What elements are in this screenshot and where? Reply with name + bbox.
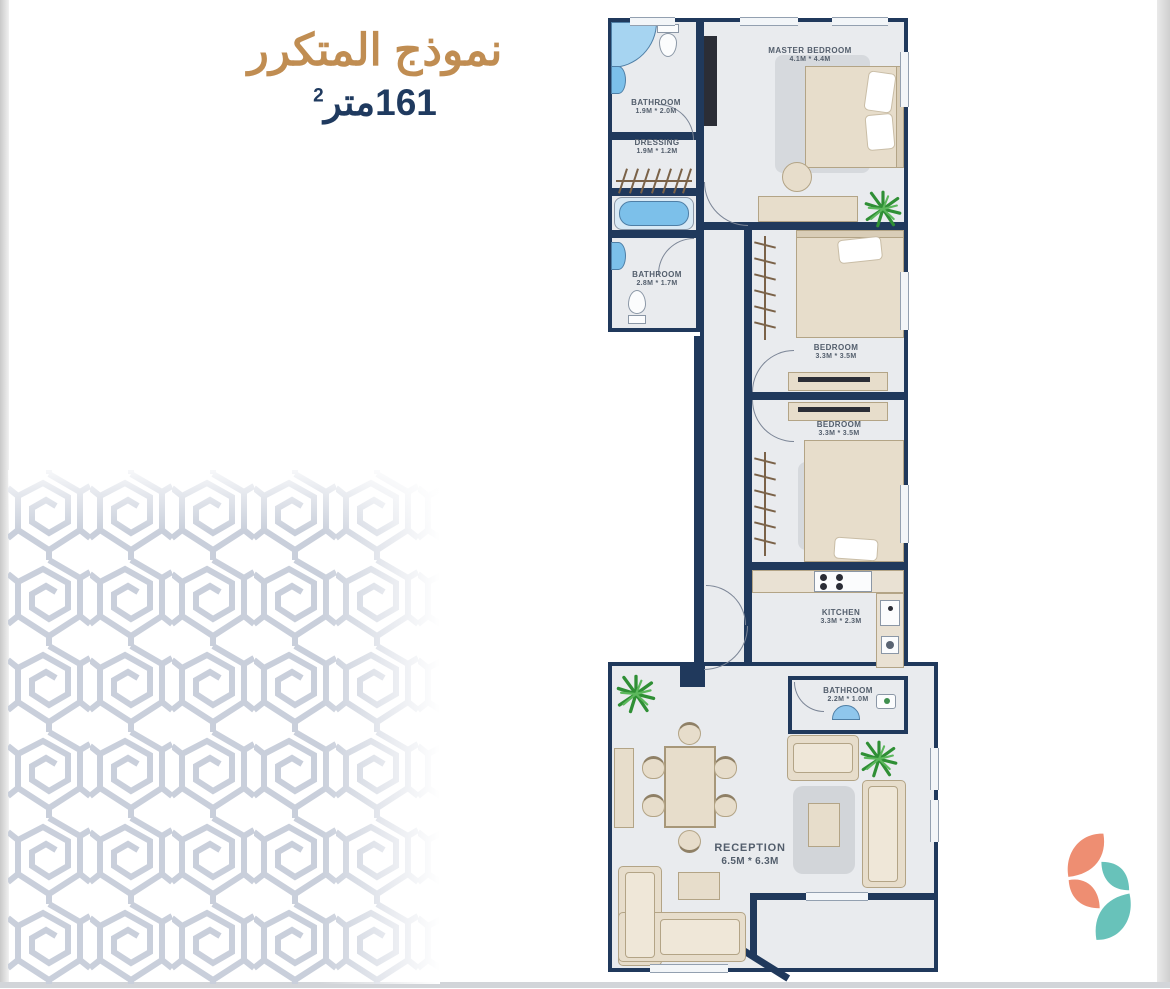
room-label-master-bedroom: MASTER BEDROOM4.1M * 4.4M <box>750 46 870 65</box>
floor-plan: MASTER BEDROOM4.1M * 4.4M BATHROOM1.9M *… <box>600 10 945 976</box>
pillow <box>863 70 896 114</box>
room-label-bathroom-mid: BATHROOM2.8M * 1.7M <box>612 270 702 289</box>
tv-icon <box>798 377 870 382</box>
chair <box>642 794 665 817</box>
sofa-cushions <box>793 743 853 773</box>
plant-icon <box>858 738 900 785</box>
room-label-bedroom-1: BEDROOM3.3M * 3.5M <box>780 343 892 362</box>
chair <box>678 722 701 745</box>
dining-table <box>664 746 716 828</box>
closet-rail-icon <box>754 236 776 340</box>
wall-corridor-left <box>694 336 704 666</box>
page: { "header": { "title_ar": "نموذج المتكرر… <box>0 0 1170 988</box>
toilet-tank <box>628 315 646 324</box>
window <box>900 272 909 330</box>
room-label-dressing: DRESSING1.9M * 1.2M <box>612 138 702 157</box>
burner <box>820 583 827 590</box>
burner <box>836 583 843 590</box>
plant-icon <box>862 188 904 235</box>
window <box>740 17 798 26</box>
window <box>900 52 909 107</box>
toilet-icon <box>628 290 646 314</box>
chair <box>714 756 737 779</box>
pillow <box>864 113 895 151</box>
burner <box>836 574 843 581</box>
sofa-cushions <box>625 872 655 958</box>
coffee-table <box>808 803 840 847</box>
decor-pattern <box>8 470 440 989</box>
chair <box>642 756 665 779</box>
area-unit: متر <box>324 82 375 123</box>
tv-icon <box>798 407 870 412</box>
area-superscript: 2 <box>313 85 324 106</box>
console-table <box>614 748 634 828</box>
page-edge-right <box>1157 0 1170 988</box>
room-label-kitchen: KITCHEN3.3M * 2.3M <box>785 608 897 627</box>
chair <box>714 794 737 817</box>
chair-desk <box>782 162 812 192</box>
washer-door <box>886 641 894 649</box>
closet-rail-icon <box>616 168 692 194</box>
window <box>930 748 939 790</box>
room-label-bathroom-top: BATHROOM1.9M * 2.0M <box>614 98 698 117</box>
brand-logo <box>1058 824 1140 953</box>
window <box>832 17 888 26</box>
wardrobe-master <box>704 36 717 126</box>
window <box>930 800 939 842</box>
room-label-reception: RECEPTION6.5M * 6.3M <box>685 842 815 868</box>
sofa-cushions <box>868 786 898 882</box>
closet-rail-icon <box>754 452 776 556</box>
sink-icon <box>611 66 626 94</box>
window <box>900 485 909 543</box>
wall-entry-top-left <box>750 893 806 900</box>
coffee-table <box>678 872 720 900</box>
window <box>650 964 728 973</box>
window <box>630 17 675 26</box>
plan-title-arabic: نموذج المتكرر <box>230 26 520 77</box>
sofa-cushions <box>660 919 740 955</box>
wall-reception-corner <box>680 665 705 687</box>
window <box>806 892 868 901</box>
bathtub-icon <box>619 201 689 226</box>
sink-icon <box>611 242 626 270</box>
area-value: 161 <box>375 82 437 123</box>
room-label-bathroom-small: BATHROOM2.2M * 1.0M <box>796 686 900 705</box>
wall-entry-top-right <box>868 893 936 900</box>
pillow <box>837 236 883 264</box>
plant-icon <box>614 672 658 721</box>
desk <box>758 196 858 222</box>
title-block: نموذج المتكرر 161متر2 <box>230 26 520 124</box>
room-label-bedroom-2: BEDROOM3.3M * 3.5M <box>783 420 895 439</box>
wall-entry-side <box>750 893 757 955</box>
burner <box>820 574 827 581</box>
pillow <box>833 536 878 561</box>
plan-area-text: 161متر2 <box>230 81 520 124</box>
